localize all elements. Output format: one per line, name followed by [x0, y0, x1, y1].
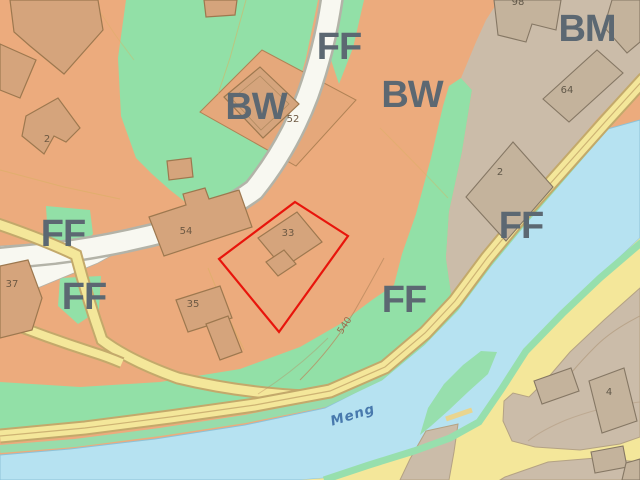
zone-label-ff-right: FF	[499, 205, 543, 247]
building-number-2-right: 2	[497, 167, 503, 178]
map-canvas[interactable]: FF BW BW BM FF FF FF FF 2 52 54 33 35 37…	[0, 0, 640, 480]
building-number-54: 54	[180, 226, 193, 237]
building-top-small	[204, 0, 237, 17]
building-number-33: 33	[282, 228, 295, 239]
building-number-2-left: 2	[44, 134, 50, 145]
zone-label-ff-left-lower: FF	[62, 276, 106, 318]
building-number-37: 37	[6, 279, 19, 290]
building-number-98: 98	[512, 0, 525, 8]
zone-label-bw-right: BW	[381, 74, 443, 116]
zone-label-ff-top: FF	[317, 26, 361, 68]
building-number-64: 64	[561, 85, 574, 96]
zone-label-bw-left: BW	[225, 86, 287, 128]
zone-label-ff-left-upper: FF	[41, 213, 85, 255]
building-number-52: 52	[287, 114, 300, 125]
building-small-above-54	[167, 158, 193, 180]
building-number-35: 35	[187, 299, 200, 310]
zone-label-bm: BM	[558, 8, 615, 50]
building-number-4: 4	[606, 387, 612, 398]
zone-label-ff-riverside: FF	[382, 279, 426, 321]
map-viewport[interactable]: FF BW BW BM FF FF FF FF 2 52 54 33 35 37…	[0, 0, 640, 480]
